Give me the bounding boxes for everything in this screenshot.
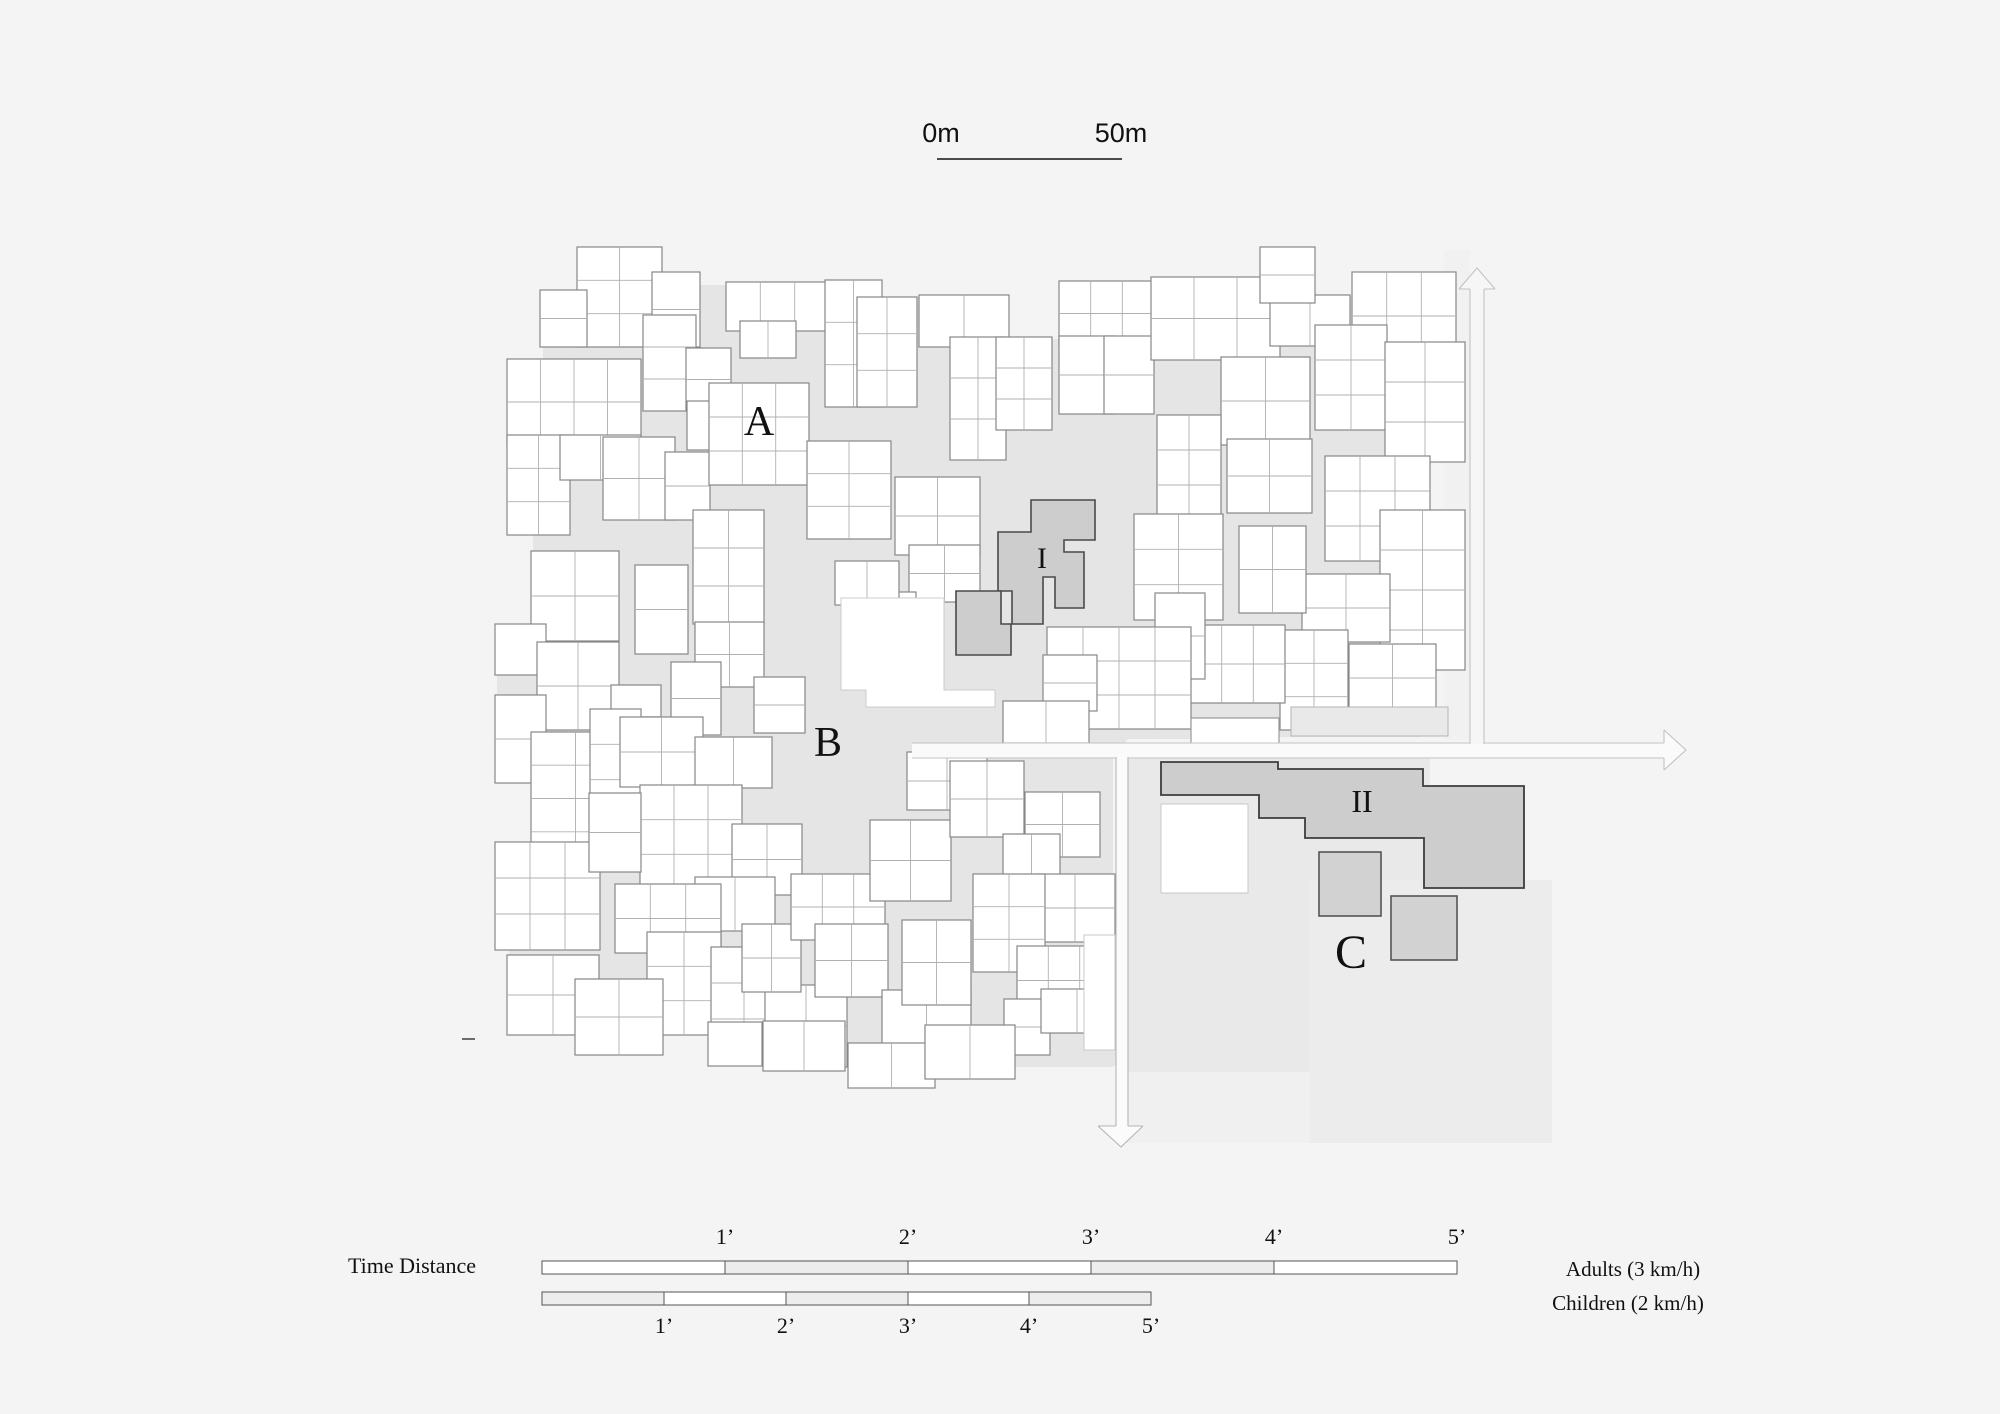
svg-text:0m: 0m [922,118,960,148]
svg-text:1’: 1’ [716,1224,734,1249]
svg-text:Time Distance: Time Distance [348,1253,476,1278]
svg-text:4’: 4’ [1020,1313,1038,1338]
svg-text:II: II [1351,783,1372,819]
svg-text:3’: 3’ [899,1313,917,1338]
svg-text:C: C [1335,926,1367,979]
svg-text:B: B [814,720,842,766]
svg-text:2’: 2’ [899,1224,917,1249]
svg-text:50m: 50m [1095,118,1148,148]
svg-text:A: A [744,399,775,445]
svg-text:I: I [1037,542,1047,575]
svg-text:2’: 2’ [777,1313,795,1338]
svg-text:4’: 4’ [1265,1224,1283,1249]
svg-text:1’: 1’ [655,1313,673,1338]
svg-text:3’: 3’ [1082,1224,1100,1249]
svg-text:Children (2 km/h): Children (2 km/h) [1552,1291,1704,1315]
svg-text:5’: 5’ [1448,1224,1466,1249]
svg-text:Adults (3 km/h): Adults (3 km/h) [1566,1257,1700,1281]
svg-text:5’: 5’ [1142,1313,1160,1338]
